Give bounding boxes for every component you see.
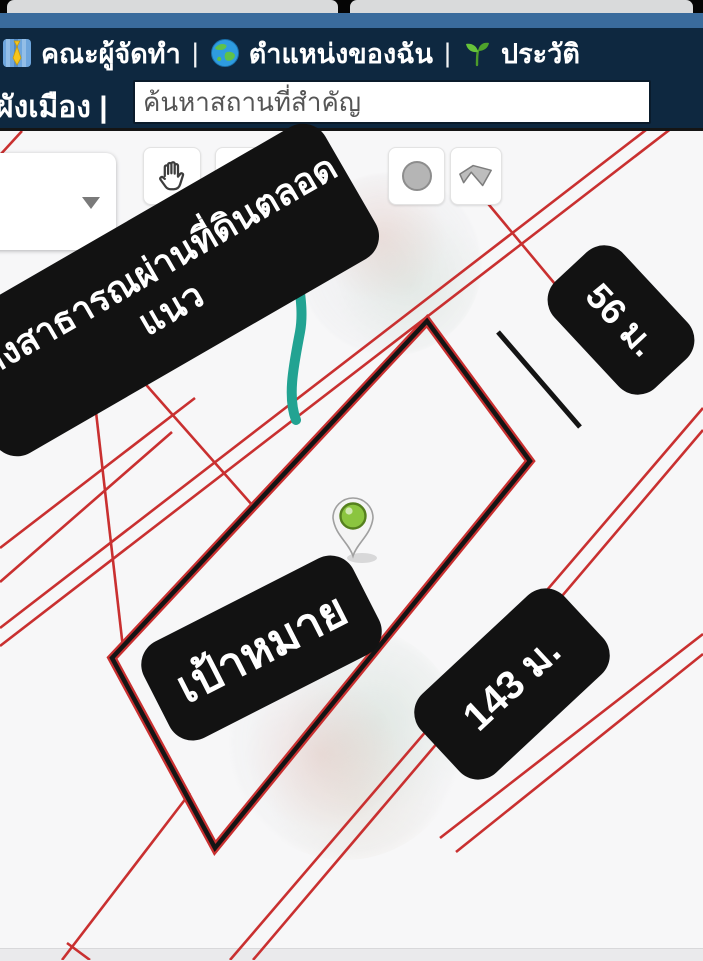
browser-toolbar-edge bbox=[0, 13, 703, 28]
menu-item-my-location[interactable]: ตำแหน่งของฉัน bbox=[249, 32, 433, 75]
globe-icon bbox=[210, 38, 240, 68]
browser-tab-strip bbox=[0, 0, 703, 13]
search-input[interactable] bbox=[133, 80, 651, 124]
menu-item-history[interactable]: ประวัติ bbox=[501, 32, 580, 75]
neighbor-parcel-black-line bbox=[498, 332, 580, 427]
menu-item-team[interactable]: คณะผู้จัดทำ bbox=[41, 32, 181, 75]
navbar-search-row: ผังเมือง | bbox=[0, 78, 703, 128]
seedling-icon bbox=[462, 38, 492, 68]
polygon-icon bbox=[457, 161, 495, 191]
layer-dropdown[interactable]: ที่ bbox=[0, 153, 116, 250]
marker-tool-button[interactable] bbox=[388, 147, 445, 205]
map-pin-icon[interactable] bbox=[333, 498, 377, 563]
annotation-text: 56 ม. bbox=[576, 274, 665, 365]
navbar-menu-row: คณะผู้จัดทำ | ตำแหน่งของฉัน | ประวัติ bbox=[0, 28, 703, 78]
necktie-icon bbox=[2, 38, 32, 68]
layer-label: ผังเมือง | bbox=[0, 84, 108, 131]
menu-separator: | bbox=[192, 38, 199, 69]
browser-tab[interactable] bbox=[7, 0, 338, 13]
chevron-down-icon bbox=[82, 197, 100, 209]
menu-separator: | bbox=[444, 38, 451, 69]
app-navbar: คณะผู้จัดทำ | ตำแหน่งของฉัน | ประวัติ ผั… bbox=[0, 28, 703, 131]
circle-filled-icon bbox=[402, 161, 432, 191]
polygon-tool-button[interactable] bbox=[450, 147, 502, 205]
browser-tab[interactable] bbox=[350, 0, 693, 13]
